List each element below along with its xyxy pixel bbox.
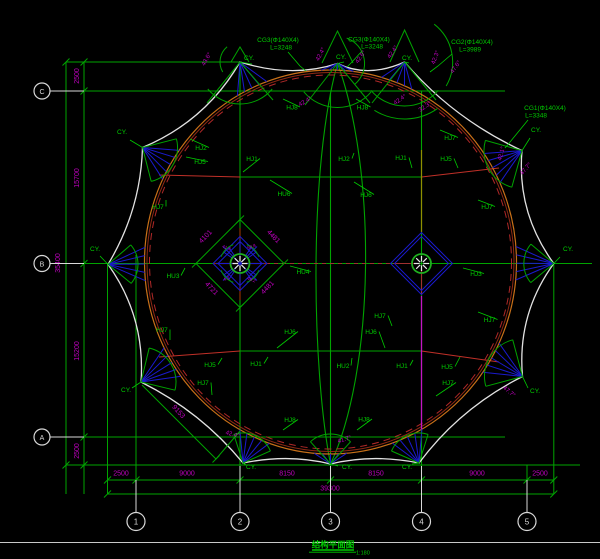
- svg-text:HU2: HU2: [336, 363, 349, 370]
- svg-text:CY.: CY.: [530, 388, 540, 395]
- svg-text:HJ7: HJ7: [156, 327, 168, 334]
- svg-text:L=3348: L=3348: [525, 113, 547, 120]
- svg-text:HJ6: HJ6: [284, 329, 296, 336]
- svg-text:5: 5: [525, 518, 530, 527]
- svg-text:CY.: CY.: [244, 55, 254, 62]
- svg-text:HJ8: HJ8: [358, 417, 370, 424]
- svg-text:CG1(Φ140X4): CG1(Φ140X4): [524, 105, 566, 112]
- svg-text:CY.: CY.: [121, 387, 131, 394]
- svg-text:CY.: CY.: [342, 464, 352, 471]
- svg-text:15200: 15200: [74, 341, 81, 361]
- svg-text:B: B: [40, 262, 45, 269]
- svg-text:2500: 2500: [532, 471, 548, 478]
- svg-text:HJ1: HJ1: [246, 156, 258, 163]
- svg-text:1:180: 1:180: [356, 551, 370, 557]
- svg-text:HJ7: HJ7: [152, 204, 164, 211]
- svg-text:HJ6: HJ6: [365, 329, 377, 336]
- svg-text:HJ1: HJ1: [250, 361, 262, 368]
- svg-text:CG3(Φ140X4): CG3(Φ140X4): [257, 37, 299, 44]
- svg-text:35400: 35400: [55, 253, 62, 273]
- svg-text:HJ5: HJ5: [204, 362, 216, 369]
- svg-text:4: 4: [419, 518, 424, 527]
- svg-text:HJ5: HJ5: [440, 156, 452, 163]
- svg-text:HJ7: HJ7: [197, 380, 209, 387]
- svg-text:CY.: CY.: [90, 246, 100, 253]
- svg-text:HJ7: HJ7: [374, 313, 386, 320]
- svg-text:HJ5: HJ5: [441, 364, 453, 371]
- svg-text:L=3248: L=3248: [361, 44, 383, 51]
- svg-text:CG2(Φ140X4): CG2(Φ140X4): [451, 39, 493, 46]
- svg-text:CY.: CY.: [246, 464, 256, 471]
- svg-text:8150: 8150: [279, 471, 295, 478]
- svg-text:2500: 2500: [113, 471, 129, 478]
- svg-text:1: 1: [134, 518, 139, 527]
- svg-text:3: 3: [328, 518, 333, 527]
- svg-text:HJ6: HJ6: [360, 192, 372, 199]
- svg-text:结构平面图: 结构平面图: [312, 540, 355, 550]
- svg-text:CY.: CY.: [531, 127, 541, 134]
- svg-text:CG3(Φ140X4): CG3(Φ140X4): [348, 37, 390, 44]
- svg-text:9000: 9000: [179, 471, 195, 478]
- svg-text:C: C: [39, 89, 44, 96]
- svg-text:CY.: CY.: [563, 246, 573, 253]
- svg-text:2500: 2500: [74, 68, 81, 84]
- svg-text:15700: 15700: [74, 168, 81, 188]
- svg-text:HU3: HU3: [166, 273, 179, 280]
- svg-text:2500: 2500: [74, 443, 81, 459]
- svg-text:CY.: CY.: [402, 55, 412, 62]
- svg-text:CY.: CY.: [117, 129, 127, 136]
- svg-text:HJ3: HJ3: [470, 271, 482, 278]
- svg-text:2: 2: [238, 518, 243, 527]
- svg-text:HJ2: HJ2: [338, 156, 350, 163]
- svg-text:HJ1: HJ1: [395, 155, 407, 162]
- svg-text:HU6: HU6: [277, 191, 290, 198]
- svg-text:HJ1: HJ1: [396, 363, 408, 370]
- svg-text:HJ8: HJ8: [284, 417, 296, 424]
- svg-text:CY.: CY.: [336, 54, 346, 61]
- svg-text:HJ8: HJ8: [357, 105, 369, 112]
- svg-text:9000: 9000: [469, 471, 485, 478]
- svg-text:L=3248: L=3248: [270, 45, 292, 52]
- svg-text:L=3989: L=3989: [459, 47, 481, 54]
- svg-text:A: A: [40, 435, 45, 442]
- svg-text:8150: 8150: [368, 471, 384, 478]
- svg-text:HU4: HU4: [296, 269, 309, 276]
- svg-text:HJ7: HJ7: [442, 380, 454, 387]
- svg-text:CY.: CY.: [402, 464, 412, 471]
